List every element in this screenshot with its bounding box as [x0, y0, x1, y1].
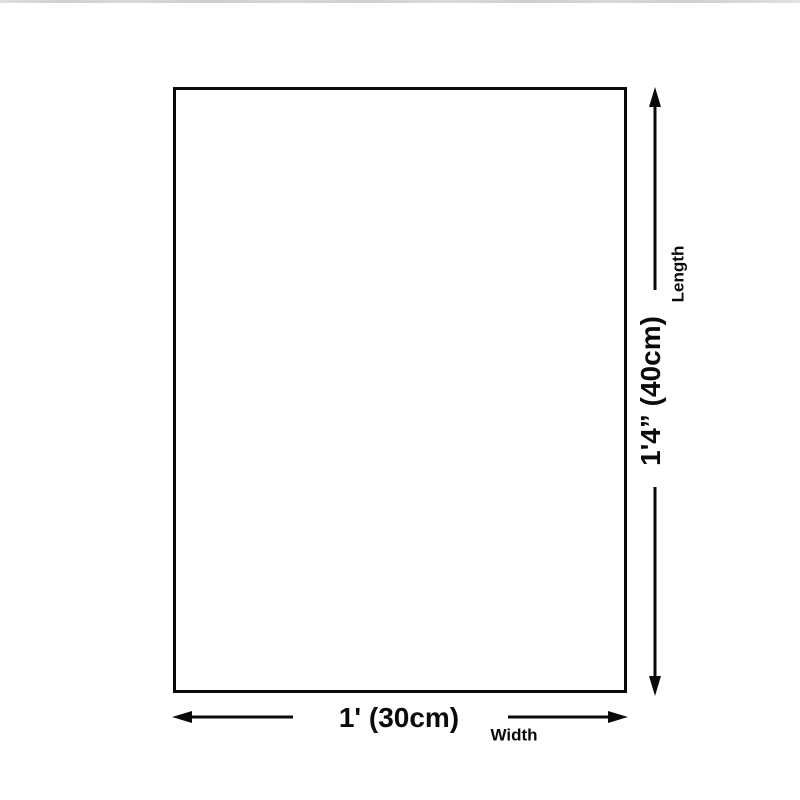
- length-value-label: 1'4” (40cm): [637, 316, 665, 466]
- arrow-down-head: [649, 676, 661, 696]
- dimension-diagram: 1'4” (40cm) Length 1' (30cm) Width: [0, 0, 800, 800]
- product-outline-rectangle: [173, 87, 627, 693]
- arrow-right-head: [608, 711, 628, 723]
- photo-edge-artifact: [0, 0, 800, 3]
- width-axis-label: Width: [490, 727, 537, 744]
- arrow-up-head: [649, 87, 661, 107]
- length-axis-label: Length: [670, 246, 687, 303]
- width-value-label: 1' (30cm): [339, 704, 459, 732]
- arrow-left-head: [172, 711, 192, 723]
